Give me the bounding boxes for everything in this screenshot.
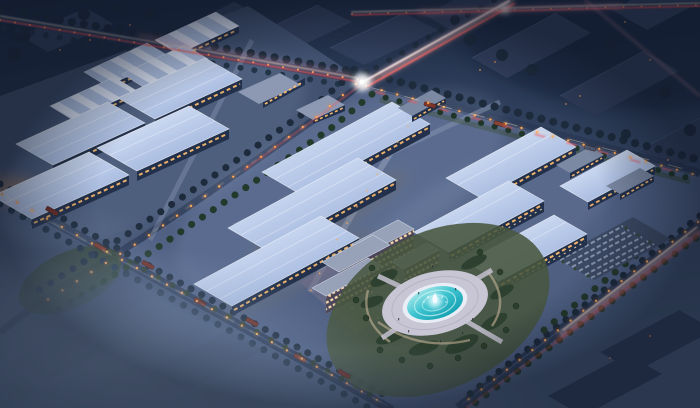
aerial-render-image (0, 0, 700, 408)
vignette (0, 0, 700, 408)
industrial-park-scene (0, 0, 700, 408)
